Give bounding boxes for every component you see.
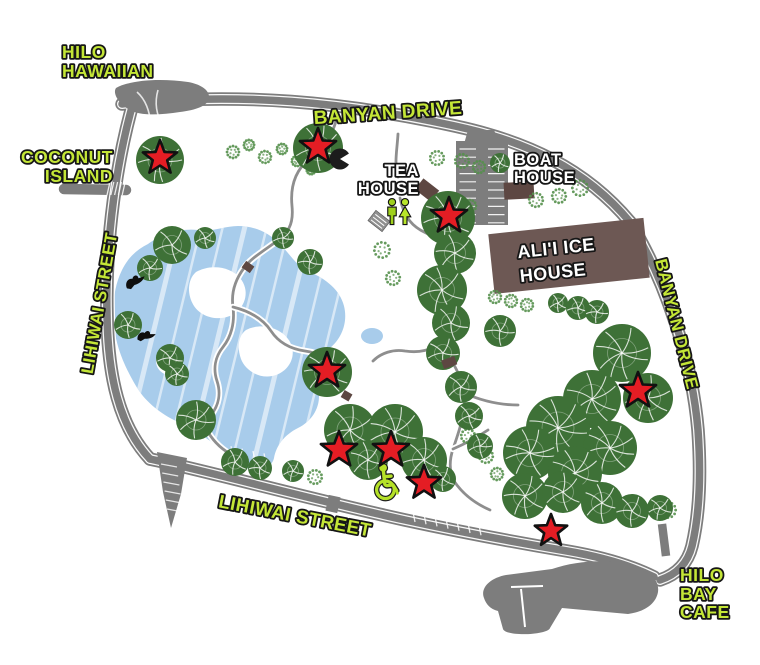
bush xyxy=(307,469,323,485)
label-boat-house-line2: HOUSE xyxy=(514,169,575,187)
banyan-tree xyxy=(114,311,142,339)
label-boat-house-line1: BOAT xyxy=(514,151,562,169)
banyan-tree xyxy=(542,471,584,513)
bush xyxy=(488,290,503,305)
banyan-tree xyxy=(297,249,323,275)
banyan-tree xyxy=(585,300,609,324)
banyan-tree xyxy=(432,304,470,342)
bush xyxy=(276,143,289,156)
banyan-tree xyxy=(282,460,304,482)
label-hilo-bay-cafe-line1: HILO xyxy=(680,565,724,585)
bush xyxy=(226,145,241,160)
label-tea-house-line2: HOUSE xyxy=(358,180,419,198)
banyan-tree xyxy=(445,371,477,403)
label-banyan-drive-right: BANYAN DRIVE xyxy=(651,257,702,391)
restroom-icon xyxy=(368,199,411,232)
label-hilo-bay-cafe-line3: CAFE xyxy=(680,602,730,622)
banyan-tree xyxy=(455,402,483,430)
label-coconut-island-line1: COCONUT xyxy=(21,147,113,167)
map-canvas: HILO HAWAIIAN COCONUT ISLAND BANYAN DRIV… xyxy=(0,0,760,665)
banyan-tree xyxy=(484,315,516,347)
label-tea-house-line1: TEA xyxy=(385,162,420,180)
pier xyxy=(157,452,187,528)
banyan-tree xyxy=(467,433,493,459)
banyan-tree xyxy=(615,494,649,528)
banyan-tree xyxy=(548,293,568,313)
banyan-tree xyxy=(272,227,294,249)
bush xyxy=(243,139,256,152)
bush xyxy=(520,298,534,312)
pond-lobe xyxy=(361,328,383,344)
banyan-tree xyxy=(490,153,510,173)
park-map-svg: HILO HAWAIIAN COCONUT ISLAND BANYAN DRIV… xyxy=(0,0,760,665)
bridge-icon xyxy=(341,390,353,401)
banyan-tree xyxy=(153,226,191,264)
banyan-tree xyxy=(165,362,189,386)
pavilion-icon xyxy=(330,149,352,170)
bush xyxy=(504,294,518,308)
road-stub xyxy=(662,524,666,556)
bush xyxy=(258,150,273,165)
bush xyxy=(385,270,401,286)
banyan-tree xyxy=(137,255,163,281)
label-coconut-island-line2: ISLAND xyxy=(45,166,113,186)
banyan-tree xyxy=(502,473,548,519)
banyan-tree xyxy=(647,495,673,521)
banyan-tree xyxy=(221,448,249,476)
banyan-tree xyxy=(248,456,272,480)
label-hilo-bay-cafe-line2: BAY xyxy=(680,584,717,604)
bush xyxy=(490,467,505,482)
label-hilo-hawaiian-line1: HILO xyxy=(62,42,106,62)
bush xyxy=(551,188,567,204)
banyan-tree xyxy=(194,227,216,249)
bush xyxy=(373,241,391,259)
label-hilo-hawaiian-line2: HAWAIIAN xyxy=(62,61,154,81)
banyan-tree xyxy=(176,400,216,440)
hilo-bay-cafe-parking xyxy=(483,561,658,634)
hilo-hawaiian-driveway xyxy=(115,80,209,114)
bush xyxy=(429,150,445,166)
